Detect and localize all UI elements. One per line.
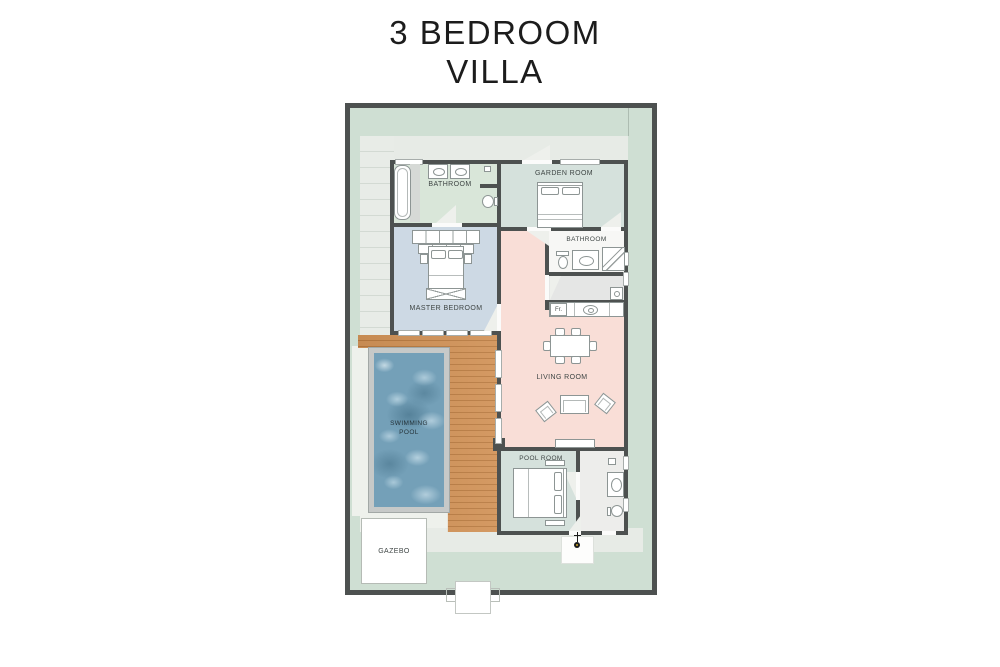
chair-icon <box>571 328 581 336</box>
shower-head-icon <box>608 458 616 465</box>
outdoor-shower-icon <box>577 532 578 542</box>
door-gap <box>432 223 462 227</box>
window <box>623 498 629 512</box>
sink-icon <box>450 164 470 179</box>
page-title-line1: 3 BEDROOM <box>0 14 990 52</box>
sliding-door-panel <box>422 330 444 336</box>
sliding-door-panel <box>446 330 468 336</box>
outdoor-shower-drain-icon <box>574 542 580 548</box>
vanity-icon <box>572 250 599 270</box>
swimming-pool-label-line2: POOL <box>374 429 444 436</box>
chair-icon <box>589 341 597 351</box>
window <box>623 456 629 470</box>
chair-icon <box>555 356 565 364</box>
gazebo-label: GAZEBO <box>378 548 410 555</box>
wall <box>545 272 628 276</box>
shower-icon <box>602 247 625 271</box>
garden-room-label: GARDEN ROOM <box>514 170 614 177</box>
window <box>623 272 629 286</box>
dining-table-icon <box>550 335 590 357</box>
nightstand-icon <box>545 520 565 526</box>
sink-icon <box>428 164 448 179</box>
bathtub-icon <box>394 165 411 220</box>
door-gap <box>545 275 549 300</box>
master-bedroom-label: MASTER BEDROOM <box>396 305 496 312</box>
sliding-door-panel <box>495 350 502 378</box>
kitchen-sink-icon <box>583 305 598 315</box>
door-gap <box>601 227 621 231</box>
chair-icon <box>543 341 551 351</box>
door-gap <box>576 472 580 500</box>
door-gap <box>497 304 501 331</box>
sofa-icon <box>560 395 589 414</box>
toilet-icon <box>611 505 623 517</box>
bathtub-platform <box>410 164 420 222</box>
paved-path-left <box>360 136 394 350</box>
nightstand-icon <box>545 460 565 466</box>
pool-apron-west <box>352 346 368 516</box>
door-gap <box>602 531 616 535</box>
site-plot: SWIMMING POOL <box>345 103 657 595</box>
sliding-door-panel <box>495 384 502 412</box>
outdoor-shower-arm <box>574 535 581 536</box>
sliding-door-panel <box>495 418 502 444</box>
water-heater-icon <box>610 287 623 300</box>
entrance-gate <box>455 581 491 614</box>
toilet-icon <box>558 256 568 269</box>
swimming-pool-label-line1: SWIMMING <box>374 420 444 427</box>
vanity-icon <box>607 472 624 497</box>
nightstand-icon <box>420 254 428 264</box>
sliding-door-panel <box>398 330 420 336</box>
door-gap <box>522 160 552 164</box>
counter-divider <box>574 303 575 316</box>
bed-icon <box>513 468 567 518</box>
toilet-icon <box>482 195 494 208</box>
bathroom-top-label: BATHROOM <box>405 181 495 188</box>
bench-icon <box>426 288 466 300</box>
fridge-icon: Fr. <box>550 303 567 316</box>
chair-icon <box>555 328 565 336</box>
nightstand-icon <box>464 254 472 264</box>
site-divider-line <box>628 108 629 136</box>
bathroom-right-label: BATHROOM <box>549 236 624 243</box>
chair-icon <box>571 356 581 364</box>
window <box>560 159 600 165</box>
pool-room-label: POOL ROOM <box>505 455 577 462</box>
wardrobe-icon <box>412 230 480 244</box>
floor-plan-page: 3 BEDROOM VILLA SWIMMING POOL <box>0 0 1000 667</box>
toilet-tank-icon <box>494 197 498 206</box>
wall <box>497 160 501 535</box>
living-room-label: LIVING ROOM <box>512 374 612 381</box>
tv-console-icon <box>555 439 595 448</box>
page-title-line2: VILLA <box>0 53 990 91</box>
wall <box>624 160 628 535</box>
wall-fixture-icon <box>484 166 491 172</box>
bed-icon <box>537 182 583 228</box>
gate-post <box>490 588 500 602</box>
counter-divider <box>609 303 610 316</box>
gazebo: GAZEBO <box>361 518 427 584</box>
